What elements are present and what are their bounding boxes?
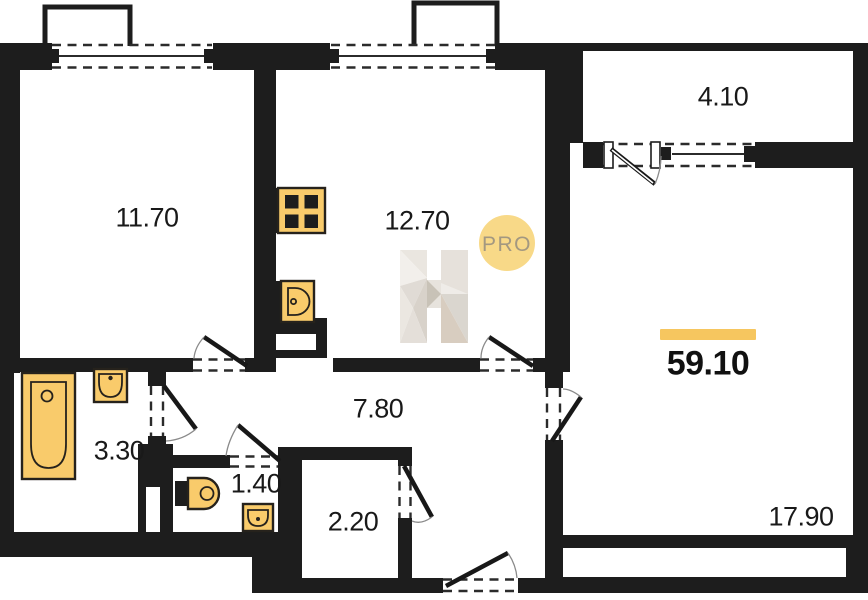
total-area-accent-bar <box>660 329 756 340</box>
bathtub-icon <box>22 373 75 479</box>
entrance-door <box>443 553 518 591</box>
bathroom-sink-icon <box>94 369 127 402</box>
kitchen-door <box>480 337 533 371</box>
pro-badge-text: PRO <box>482 233 532 256</box>
area-label-living-room: 17.90 <box>768 502 833 533</box>
area-label-storage: 2.20 <box>328 507 379 538</box>
balcony-door <box>604 142 661 184</box>
pro-badge: PRO <box>479 215 535 271</box>
area-label-bathroom: 3.30 <box>94 436 145 467</box>
storage-door <box>400 466 433 522</box>
bedroom-window <box>50 45 213 68</box>
total-area-label: 59.10 <box>667 345 750 384</box>
wc-sink-icon <box>243 504 273 531</box>
kitchen-window <box>330 45 495 68</box>
kitchen-sink-icon <box>271 281 314 322</box>
area-label-bedroom: 11.70 <box>115 203 178 234</box>
facade-ledge-left <box>45 7 130 46</box>
floorplan: PRO 11.70 12.70 4.10 59.10 17.90 3.30 7.… <box>0 0 868 600</box>
area-label-balcony: 4.10 <box>698 82 749 113</box>
wc-door <box>226 425 280 467</box>
bedroom-door <box>193 337 247 371</box>
area-label-wc: 1.40 <box>231 469 282 500</box>
stove-icon <box>271 188 325 233</box>
walls <box>0 43 868 593</box>
watermark-logo <box>400 250 468 343</box>
area-label-kitchen: 12.70 <box>384 206 449 237</box>
area-label-hallway: 7.80 <box>353 394 404 425</box>
bathroom-door <box>151 386 196 441</box>
living-room-door <box>547 388 581 441</box>
toilet-icon <box>175 478 219 509</box>
facade-ledge-mid <box>414 3 497 45</box>
